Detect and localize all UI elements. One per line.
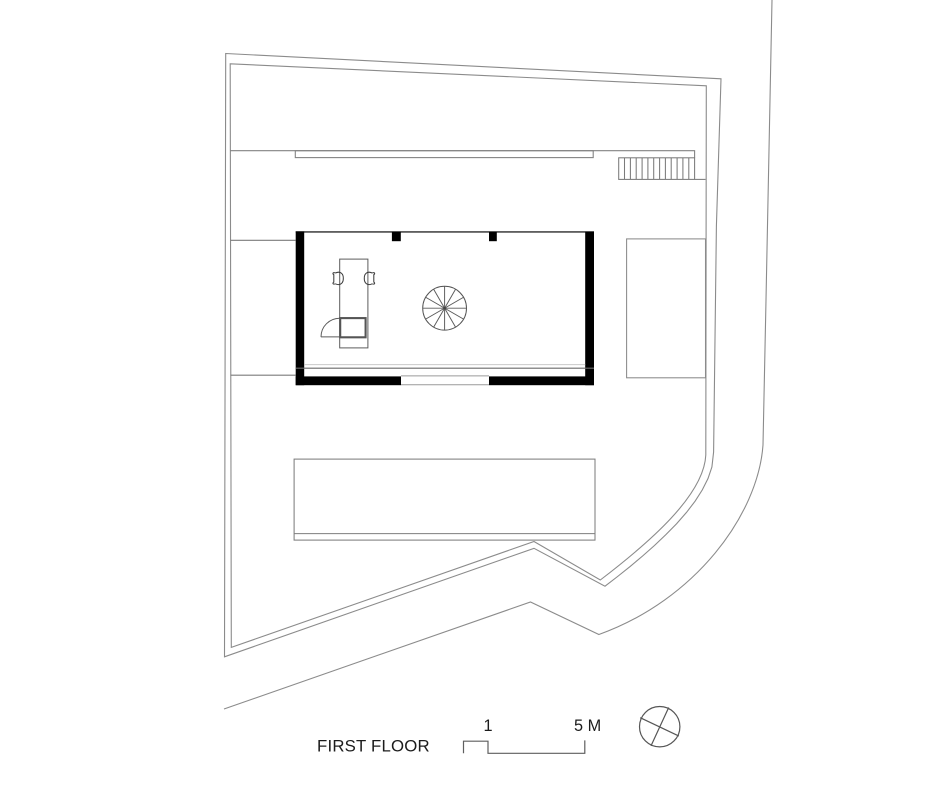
svg-text:1: 1 <box>484 717 493 735</box>
svg-text:FIRST FLOOR: FIRST FLOOR <box>317 737 430 756</box>
svg-text:5 M: 5 M <box>574 717 601 735</box>
